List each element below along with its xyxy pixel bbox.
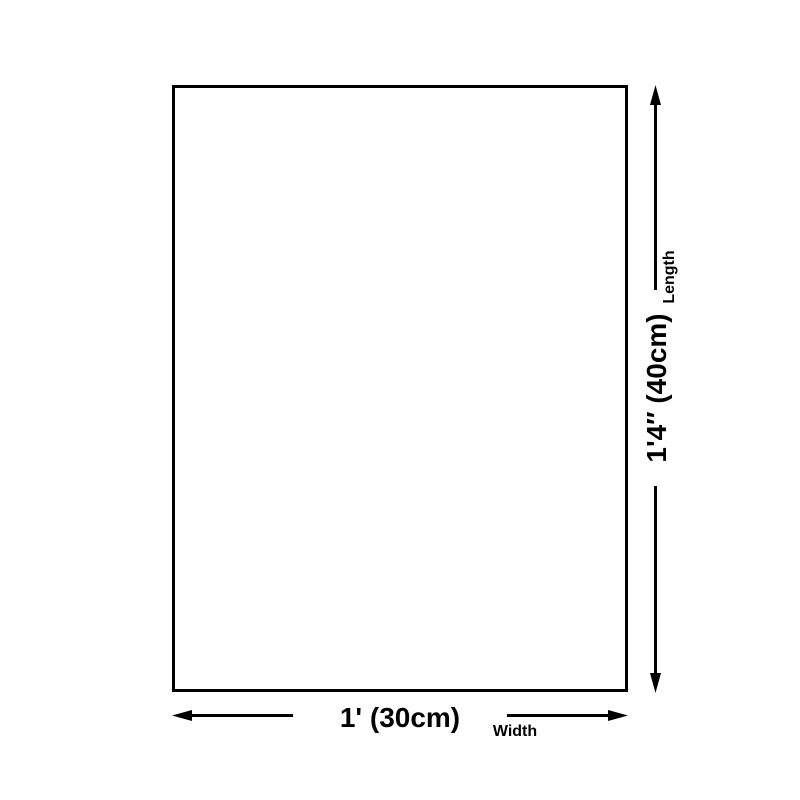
length-value: 1'4″ (40cm) (642, 313, 672, 462)
dimension-arrows (0, 0, 800, 800)
arrow-right-icon (608, 710, 628, 721)
length-label: Length (661, 250, 679, 303)
width-label: Width (465, 723, 565, 741)
arrow-down-icon (650, 673, 661, 693)
dimension-diagram: 1' (30cm) Width 1'4″ (40cm) Length (0, 0, 800, 800)
